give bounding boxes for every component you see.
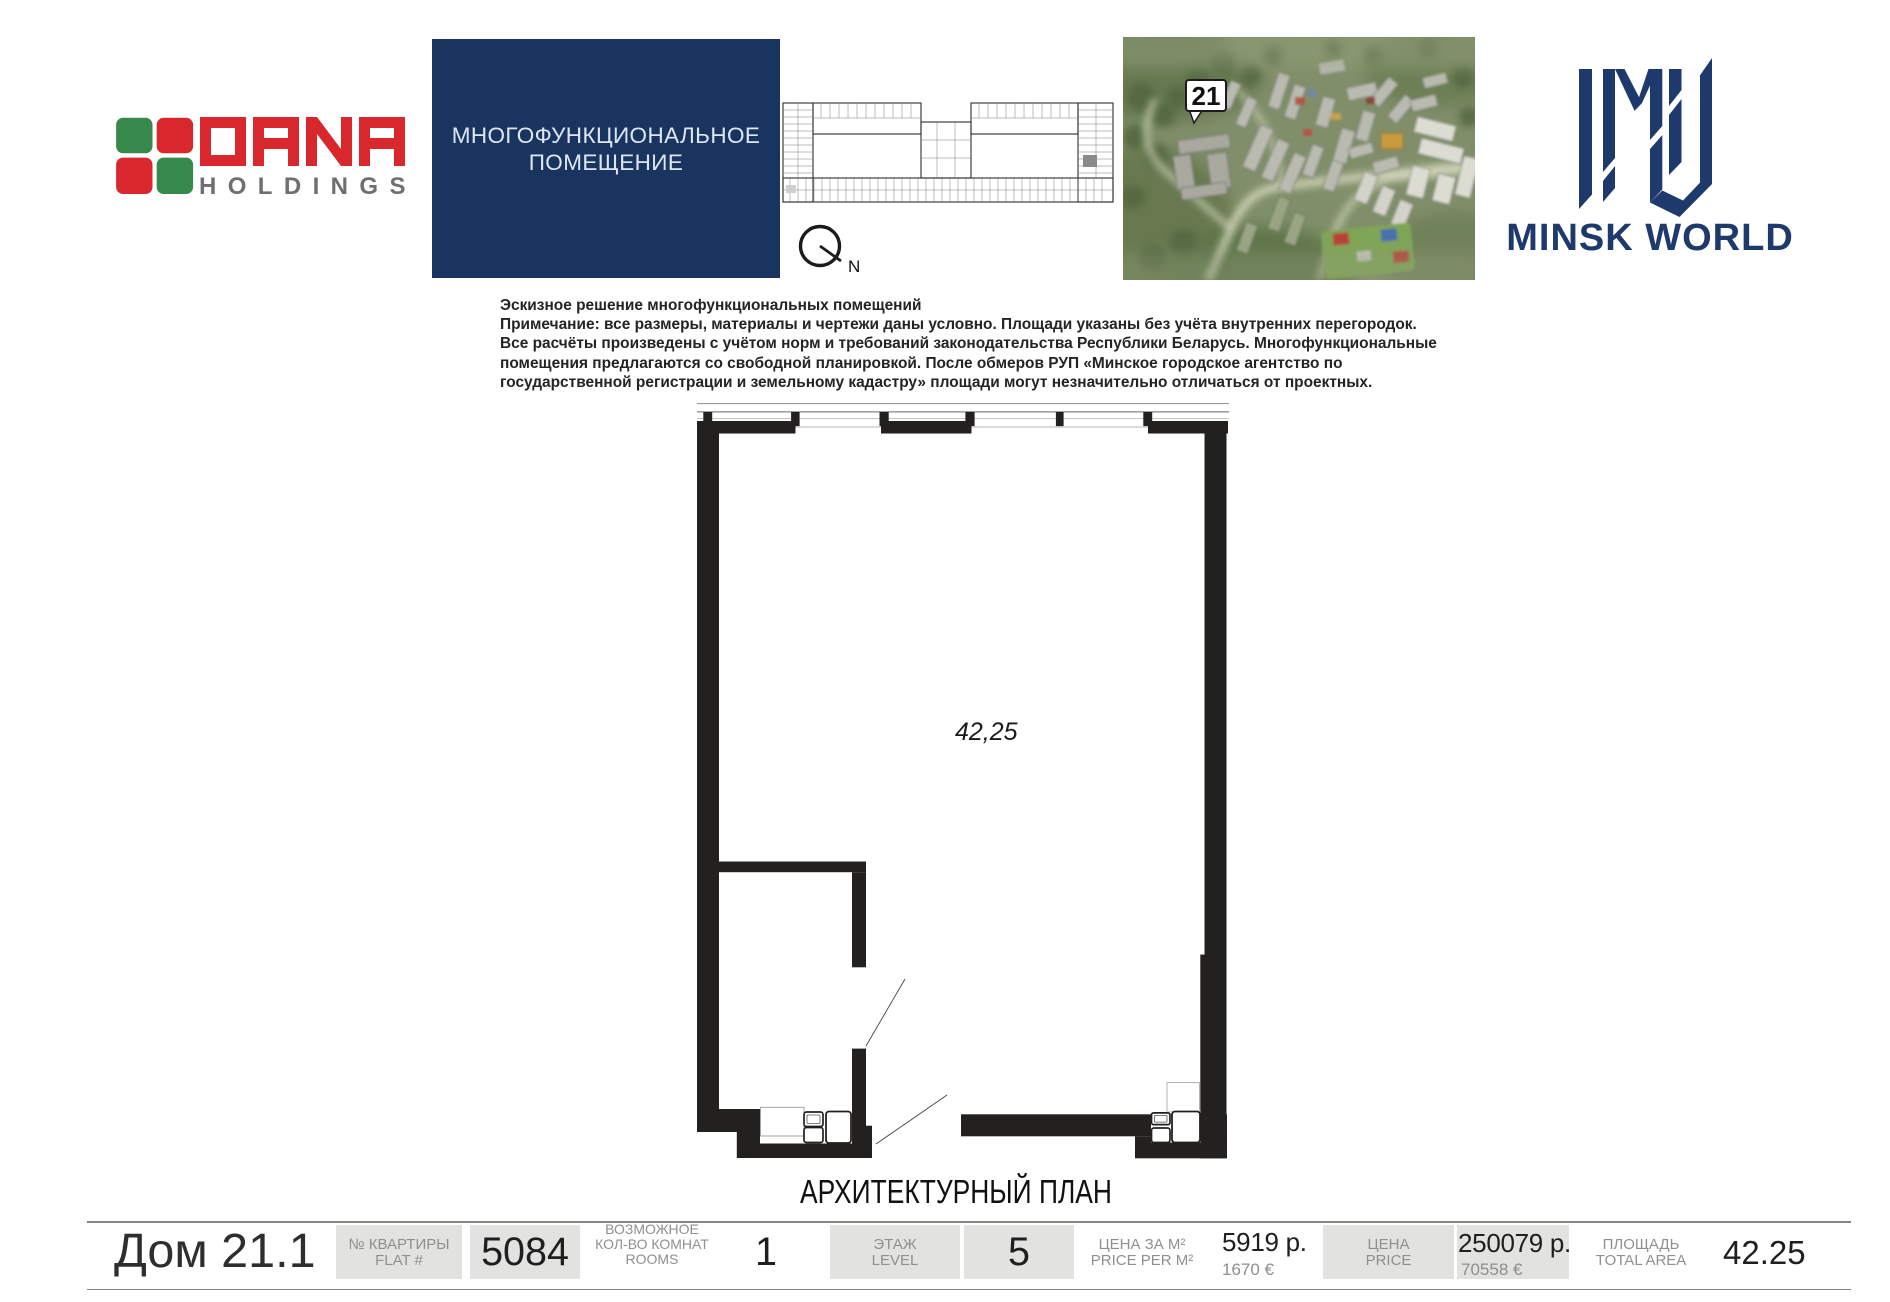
svg-text:21: 21 [1192, 81, 1221, 111]
svg-text:N: N [848, 257, 860, 276]
svg-text:HOLDINGS: HOLDINGS [199, 173, 417, 200]
svg-text:MINSK WORLD: MINSK WORLD [1506, 217, 1794, 259]
svg-text:42,25: 42,25 [955, 718, 1018, 746]
